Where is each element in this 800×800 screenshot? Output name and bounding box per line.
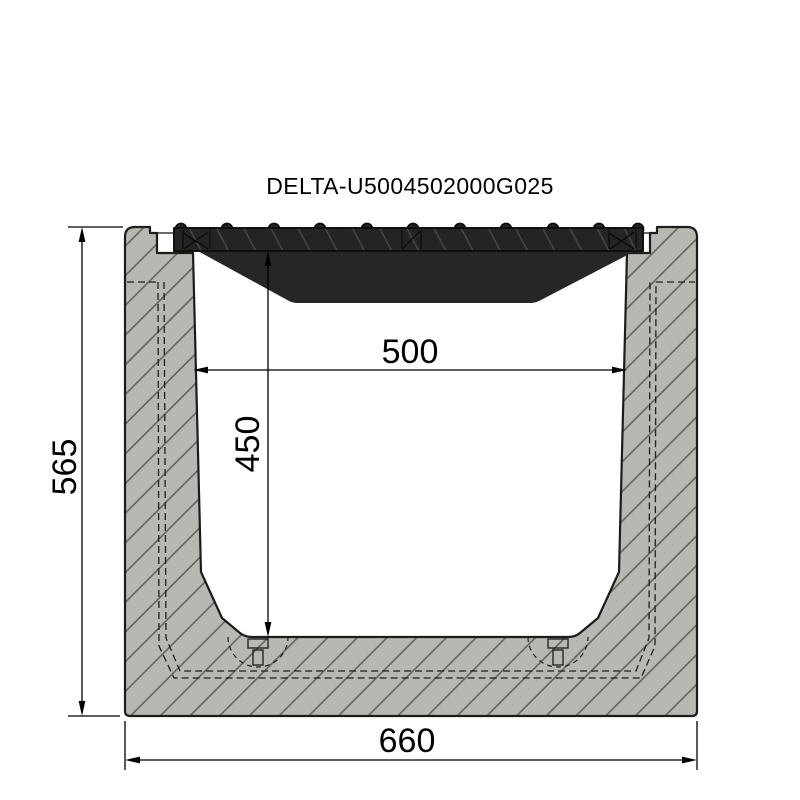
dimension-value-660: 660: [379, 722, 436, 760]
dimension-overall-height: 565: [46, 227, 123, 716]
dimension-inner-depth: 450: [229, 251, 271, 637]
drawing-canvas: DELTA-U5004502000G025: [0, 0, 800, 800]
grate-underside: [196, 250, 637, 303]
technical-drawing: DELTA-U5004502000G025: [0, 0, 800, 800]
dimension-value-565: 565: [46, 439, 84, 496]
arrowhead-right: [682, 757, 697, 764]
arrowhead-down: [265, 622, 272, 637]
arrowhead-up: [79, 227, 86, 242]
arrowhead-left: [125, 757, 140, 764]
grate: [174, 224, 644, 304]
grate-bar-hatch: [174, 228, 643, 251]
dimension-inner-width: 500: [193, 333, 627, 373]
product-title: DELTA-U5004502000G025: [266, 173, 554, 199]
dimension-value-500: 500: [382, 333, 439, 371]
arrowhead-down: [79, 701, 86, 716]
dimension-value-450: 450: [229, 416, 267, 473]
dimension-overall-width: 660: [125, 721, 697, 770]
